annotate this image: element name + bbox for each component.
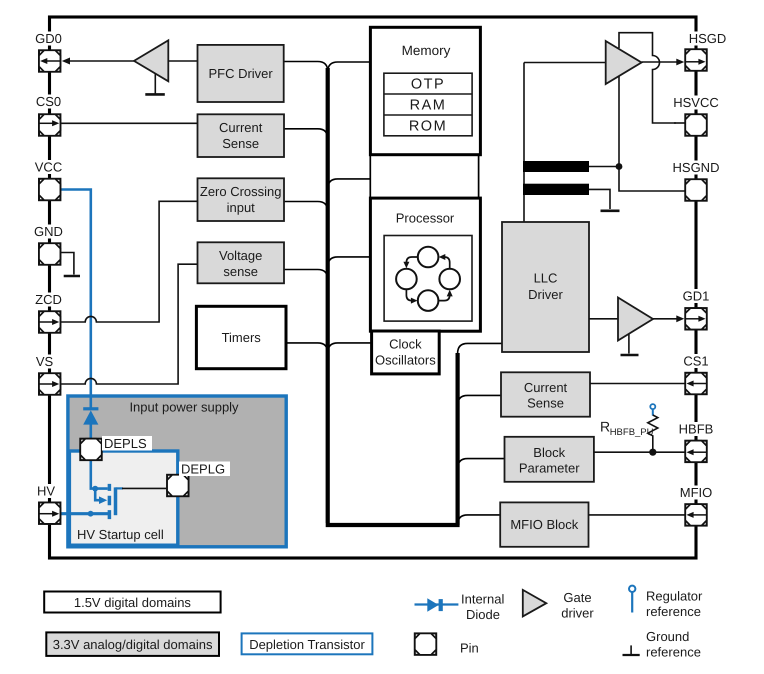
svg-text:Input power supply: Input power supply bbox=[129, 400, 239, 415]
svg-text:reference: reference bbox=[646, 604, 701, 619]
svg-text:GND: GND bbox=[34, 224, 63, 239]
svg-text:GD0: GD0 bbox=[35, 31, 62, 46]
svg-text:Internal: Internal bbox=[461, 592, 504, 607]
svg-text:Regulator: Regulator bbox=[646, 588, 703, 603]
svg-text:Pin: Pin bbox=[460, 641, 479, 656]
svg-text:driver: driver bbox=[561, 605, 594, 620]
svg-text:HSGND: HSGND bbox=[673, 160, 720, 175]
svg-text:LLC: LLC bbox=[534, 271, 558, 286]
svg-text:R: R bbox=[600, 419, 610, 435]
svg-text:VS: VS bbox=[36, 354, 54, 369]
svg-text:input: input bbox=[227, 200, 256, 215]
svg-text:MFIO Block: MFIO Block bbox=[510, 517, 578, 532]
svg-text:ROM: ROM bbox=[409, 118, 447, 134]
svg-text:DEPLS: DEPLS bbox=[104, 436, 147, 451]
svg-text:DEPLG: DEPLG bbox=[181, 462, 225, 477]
svg-text:HSGD: HSGD bbox=[689, 31, 727, 46]
svg-text:HBFB: HBFB bbox=[679, 422, 714, 437]
svg-text:CS0: CS0 bbox=[36, 94, 61, 109]
svg-text:CS1: CS1 bbox=[683, 354, 708, 369]
svg-text:Current: Current bbox=[219, 120, 263, 135]
svg-text:HBFB_PU: HBFB_PU bbox=[610, 427, 654, 438]
svg-text:Depletion Transistor: Depletion Transistor bbox=[249, 637, 365, 652]
svg-text:Processor: Processor bbox=[396, 211, 455, 226]
svg-text:Sense: Sense bbox=[527, 396, 564, 411]
svg-text:Timers: Timers bbox=[222, 330, 262, 345]
svg-text:HV: HV bbox=[37, 484, 55, 499]
svg-text:OTP: OTP bbox=[411, 76, 445, 92]
svg-text:3.3V analog/digital domains: 3.3V analog/digital domains bbox=[53, 637, 213, 652]
svg-text:Driver: Driver bbox=[528, 287, 563, 302]
svg-text:Parameter: Parameter bbox=[519, 461, 580, 476]
svg-text:MFIO: MFIO bbox=[680, 485, 713, 500]
svg-text:HSVCC: HSVCC bbox=[673, 95, 719, 110]
svg-text:1.5V digital domains: 1.5V digital domains bbox=[74, 595, 192, 610]
svg-text:Ground: Ground bbox=[646, 629, 689, 644]
svg-text:HV Startup cell: HV Startup cell bbox=[77, 527, 164, 542]
svg-text:sense: sense bbox=[223, 264, 258, 279]
svg-text:Block: Block bbox=[533, 445, 565, 460]
svg-text:VCC: VCC bbox=[35, 160, 62, 175]
svg-text:Voltage: Voltage bbox=[219, 248, 262, 263]
svg-text:GD1: GD1 bbox=[683, 289, 710, 304]
svg-text:Memory: Memory bbox=[402, 43, 451, 58]
svg-text:PFC Driver: PFC Driver bbox=[208, 66, 273, 81]
svg-text:Diode: Diode bbox=[466, 607, 500, 622]
svg-text:Sense: Sense bbox=[222, 136, 259, 151]
svg-text:ZCD: ZCD bbox=[35, 292, 62, 307]
svg-text:Current: Current bbox=[524, 380, 568, 395]
svg-text:Clock: Clock bbox=[389, 337, 422, 352]
svg-text:Zero Crossing: Zero Crossing bbox=[200, 184, 282, 199]
svg-text:RAM: RAM bbox=[410, 97, 447, 113]
svg-text:Oscillators: Oscillators bbox=[375, 353, 436, 368]
svg-text:reference: reference bbox=[646, 645, 701, 660]
svg-text:Gate: Gate bbox=[563, 590, 591, 605]
